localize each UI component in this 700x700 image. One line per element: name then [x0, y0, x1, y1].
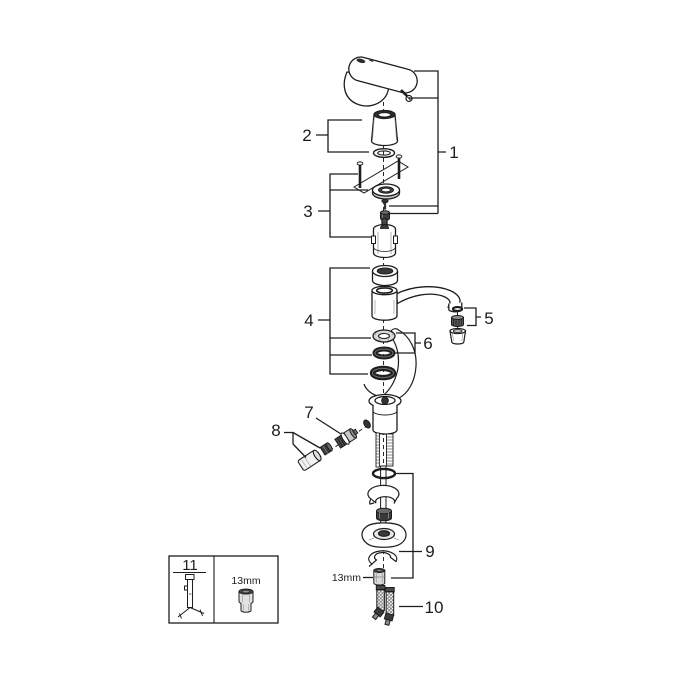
callout-7-label: 7	[304, 403, 313, 422]
callout-2-label: 2	[302, 126, 311, 145]
callout-6-label: 6	[423, 334, 432, 353]
part-aerator-housing	[450, 329, 466, 345]
part-o-ring-upper	[375, 349, 393, 357]
socket-tool-icon	[239, 589, 253, 612]
part-body-shank	[362, 395, 401, 435]
diagram-canvas: 1 2 3 4 5 6 7 8 9 10 13mm 11 13mm	[0, 0, 700, 700]
exploded-parts-diagram: 1 2 3 4 5 6 7 8 9 10 13mm 11 13mm	[0, 0, 700, 700]
callout-9-label: 9	[425, 542, 434, 561]
part-plug-nut	[320, 442, 333, 455]
tool-legend-box: 11 13mm	[169, 556, 278, 623]
callout-4-label: 4	[304, 311, 313, 330]
part-mounting-flange	[362, 523, 406, 547]
part-socket-adapter	[374, 569, 385, 586]
wrench-size-label: 13mm	[332, 572, 361, 584]
part-flanged-ring	[373, 184, 400, 199]
callout-5-label: 5	[484, 309, 493, 328]
part-cartridge	[372, 219, 398, 258]
part-retaining-collar	[373, 266, 398, 286]
part-aerator-insert	[452, 316, 464, 327]
part-o-ring-washer	[373, 330, 395, 342]
part-body-spout	[372, 286, 462, 320]
callout-10-label: 10	[425, 598, 444, 617]
part-mounting-nut	[377, 508, 392, 521]
part-dome-cap	[372, 111, 398, 146]
part-c-clip	[369, 551, 397, 567]
part-connection-hoses	[371, 586, 394, 626]
callout-8-label: 8	[271, 421, 280, 440]
callout-3-label: 3	[303, 202, 312, 221]
part-o-ring-lower	[373, 368, 394, 377]
callout-11-label: 11	[182, 557, 198, 574]
part-adapter-screw	[382, 199, 388, 209]
callout-1-label: 1	[449, 143, 458, 162]
wrench-size-box-label: 13mm	[231, 575, 260, 587]
